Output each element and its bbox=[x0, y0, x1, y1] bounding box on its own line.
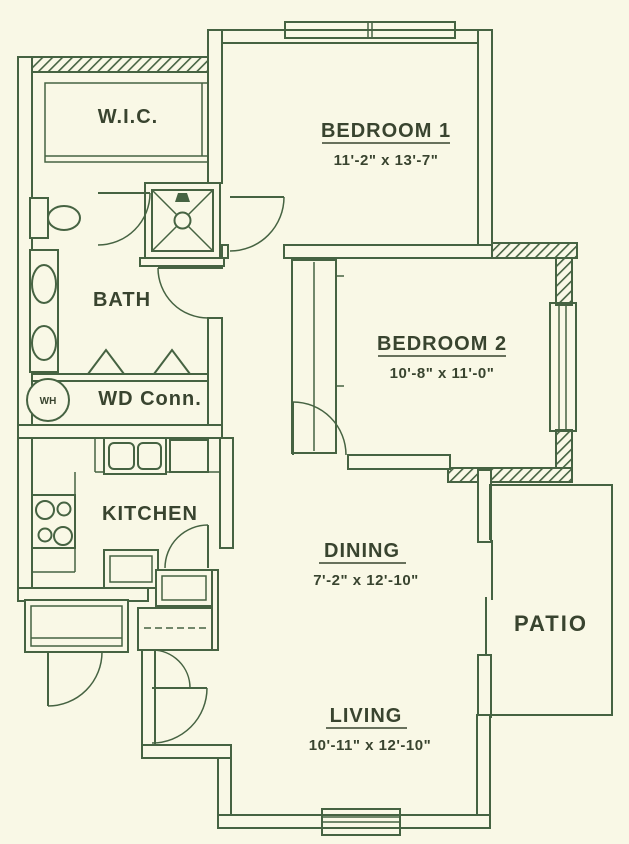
bath-kitchen-divider-wall bbox=[18, 425, 222, 438]
living-left-lower-wall bbox=[218, 750, 231, 815]
entry-closet-door bbox=[152, 650, 190, 688]
bedroom1-dims: 11'-2" x 13'-7" bbox=[334, 152, 439, 169]
bedroom1-door bbox=[230, 197, 284, 251]
bath-right-wall-lower bbox=[208, 318, 222, 425]
range-burners bbox=[32, 495, 75, 548]
entry-left-wall bbox=[142, 648, 155, 745]
shower-stall bbox=[140, 183, 224, 266]
dining-label: DINING bbox=[324, 540, 400, 562]
kitchen-label: KITCHEN bbox=[102, 503, 198, 525]
bath-door bbox=[158, 268, 208, 318]
bedroom1-label: BEDROOM 1 bbox=[321, 120, 451, 142]
refrigerator bbox=[170, 440, 208, 472]
wic-right-wall bbox=[208, 30, 222, 183]
bedroom1-right-wall bbox=[478, 30, 492, 255]
wic-top-hatched-wall bbox=[18, 57, 222, 72]
patio-left-lower-wall bbox=[478, 655, 491, 717]
wic-bath-door bbox=[98, 193, 150, 245]
kitchen-right-wall bbox=[220, 438, 233, 548]
kitchen-double-sink bbox=[104, 438, 166, 474]
dining-dims: 7'-2" x 12'-10" bbox=[313, 572, 419, 589]
bedroom2-dims: 10'-8" x 11'-0" bbox=[390, 365, 495, 382]
bedroom2-bottom-hatched-wall bbox=[448, 468, 572, 482]
washer-dryer-bifold-doors bbox=[88, 350, 190, 374]
living-label: LIVING bbox=[330, 705, 403, 727]
bedroom2-label: BEDROOM 2 bbox=[377, 333, 507, 355]
bedroom2-window bbox=[550, 303, 576, 431]
wd-conn-label: WD Conn. bbox=[98, 388, 202, 410]
bedroom2-bottom-wall bbox=[348, 455, 450, 469]
bedroom1-top-wall bbox=[222, 30, 492, 43]
patio-label: PATIO bbox=[514, 611, 588, 636]
toilet-fixture bbox=[30, 198, 80, 238]
patio-walls bbox=[490, 485, 612, 715]
living-dims: 10'-11" x 12'-10" bbox=[309, 737, 431, 754]
vanity-double-sink bbox=[30, 250, 58, 372]
storage-closet bbox=[25, 600, 128, 652]
pantry bbox=[156, 570, 212, 606]
entry-door bbox=[152, 688, 207, 743]
bedroom2-top-hatched-wall bbox=[492, 243, 577, 258]
bath-label: BATH bbox=[93, 289, 151, 311]
storage-door bbox=[48, 652, 102, 706]
bath-wd-divider-wall bbox=[32, 374, 208, 381]
bedroom1-bedroom2-divider-wall bbox=[284, 245, 492, 258]
living-window bbox=[322, 809, 400, 835]
patio-outline bbox=[486, 485, 612, 715]
pantry-door bbox=[165, 525, 208, 568]
wic-label: W.I.C. bbox=[98, 106, 158, 128]
bedroom2-right-hatched-upper bbox=[556, 258, 572, 305]
bedroom1-bottom-jamb bbox=[222, 245, 228, 258]
island-counter bbox=[104, 550, 158, 588]
entry-bottom-wall bbox=[142, 745, 231, 758]
coat-closet bbox=[138, 608, 212, 650]
living-right-wall bbox=[477, 715, 490, 828]
water-heater: WH bbox=[27, 379, 69, 421]
water-heater-label: WH bbox=[40, 396, 57, 407]
floor-plan: WH bbox=[0, 0, 629, 844]
